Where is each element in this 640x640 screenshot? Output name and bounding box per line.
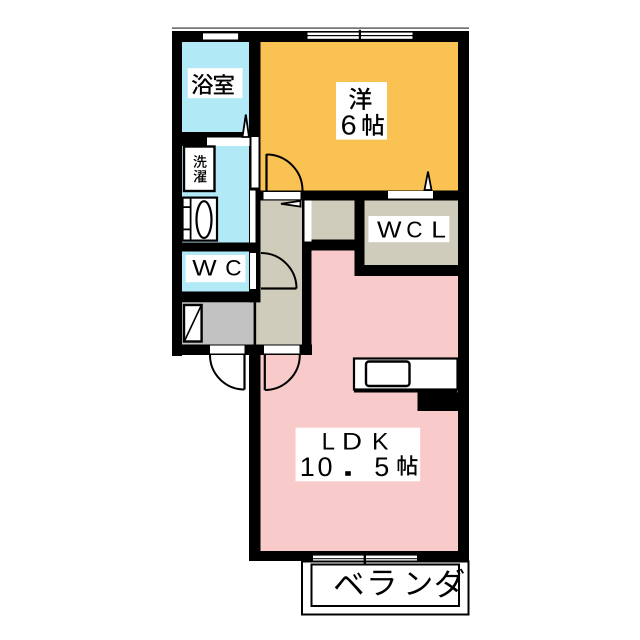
svg-text:D: D (342, 429, 362, 456)
svg-text:L: L (431, 217, 446, 243)
svg-text:W: W (377, 217, 402, 243)
svg-text:C: C (406, 217, 422, 243)
svg-text:1: 1 (300, 452, 315, 482)
svg-text:W: W (192, 256, 217, 281)
svg-text:6: 6 (341, 109, 357, 140)
svg-text:C: C (225, 256, 241, 281)
svg-text:5: 5 (374, 452, 389, 482)
svg-text:0: 0 (318, 452, 333, 482)
